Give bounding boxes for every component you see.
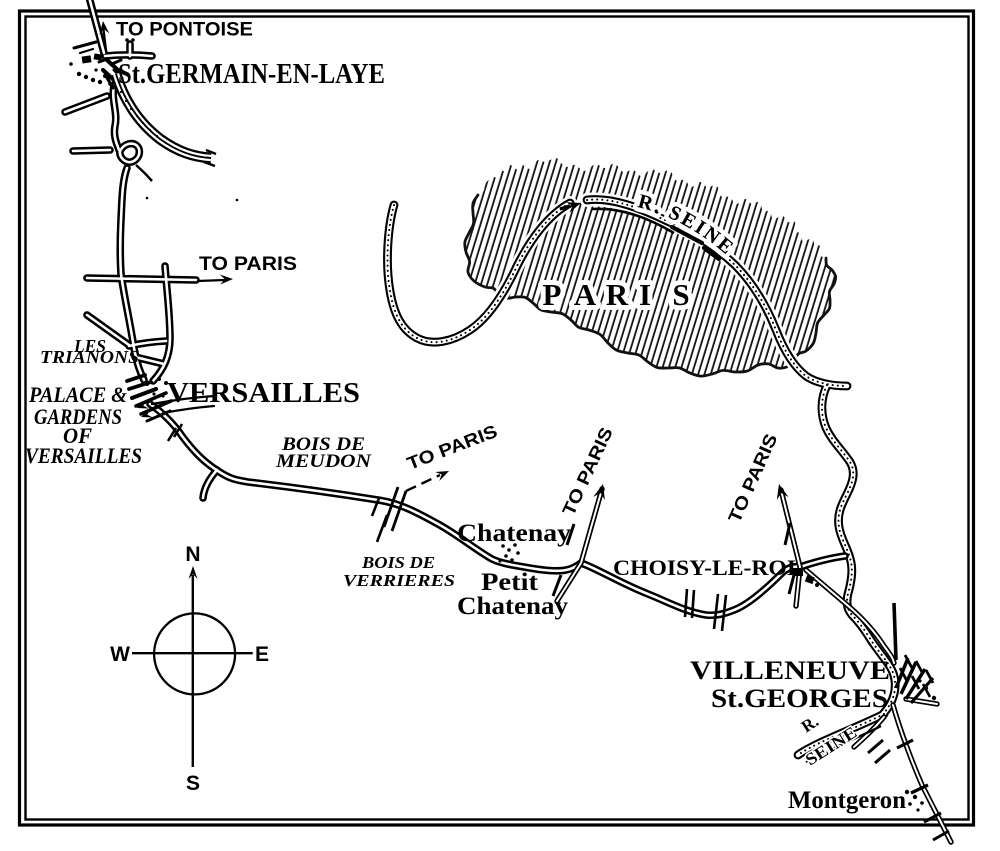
svg-text:VERSAILLES: VERSAILLES <box>167 378 360 409</box>
svg-text:TO PARIS: TO PARIS <box>199 254 297 275</box>
svg-text:VERSAILLES: VERSAILLES <box>25 443 142 468</box>
svg-text:MEUDON: MEUDON <box>275 451 373 472</box>
svg-text:N: N <box>185 543 200 566</box>
svg-text:St.GERMAIN-EN-LAYE: St.GERMAIN-EN-LAYE <box>118 59 385 90</box>
svg-text:VERRIERES: VERRIERES <box>343 571 455 590</box>
svg-text:R: R <box>606 277 629 312</box>
svg-text:Chatenay: Chatenay <box>457 593 569 620</box>
svg-text:Chatenay: Chatenay <box>457 520 572 547</box>
svg-text:VILLENEUVE: VILLENEUVE <box>690 656 890 685</box>
svg-text:I: I <box>639 277 651 312</box>
svg-text:CHOISY-LE-ROI: CHOISY-LE-ROI <box>613 555 796 580</box>
svg-text:S: S <box>186 772 200 795</box>
svg-text:Montgeron: Montgeron <box>788 787 906 814</box>
svg-text:A: A <box>574 277 597 312</box>
svg-text:W: W <box>110 643 130 666</box>
svg-text:BOIS DE: BOIS DE <box>361 553 435 572</box>
svg-text:E: E <box>255 643 269 666</box>
svg-text:Petit: Petit <box>481 569 539 596</box>
svg-text:TRIANONS: TRIANONS <box>40 347 139 367</box>
svg-text:S: S <box>672 277 689 312</box>
svg-text:TO PONTOISE: TO PONTOISE <box>116 20 253 41</box>
svg-text:St.GEORGES: St.GEORGES <box>711 684 888 713</box>
svg-text:P: P <box>543 277 562 312</box>
